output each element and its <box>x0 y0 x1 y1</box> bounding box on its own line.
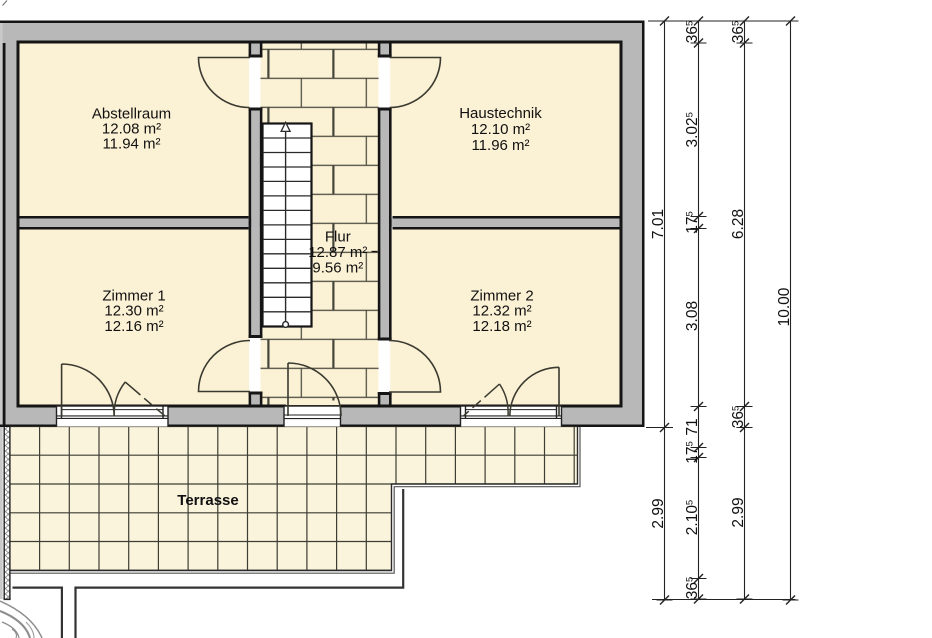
svg-text:Haustechnik: Haustechnik <box>459 105 542 122</box>
svg-text:Flur: Flur <box>325 229 351 246</box>
svg-text:6.28: 6.28 <box>730 209 747 239</box>
svg-text:71: 71 <box>684 418 701 435</box>
svg-text:2.105: 2.105 <box>684 500 701 535</box>
svg-text:12.10 m²: 12.10 m² <box>471 121 530 138</box>
svg-text:10.00: 10.00 <box>776 287 793 326</box>
svg-text:12.16 m²: 12.16 m² <box>104 318 163 335</box>
svg-text:3.08: 3.08 <box>684 301 701 331</box>
svg-text:12.18 m²: 12.18 m² <box>472 318 531 335</box>
svg-text:12.30 m²: 12.30 m² <box>104 303 163 320</box>
svg-text:3.025: 3.025 <box>684 112 701 147</box>
svg-text:12.87 m²: 12.87 m² <box>308 244 367 261</box>
svg-text:2.99: 2.99 <box>730 497 747 527</box>
svg-text:11.96 m²: 11.96 m² <box>471 137 529 154</box>
svg-text:Terrasse: Terrasse <box>177 492 238 509</box>
svg-text:7.01: 7.01 <box>650 209 667 239</box>
svg-text:11.94 m²: 11.94 m² <box>102 136 160 153</box>
svg-text:2.99: 2.99 <box>650 498 667 528</box>
svg-text:12.32 m²: 12.32 m² <box>472 303 531 320</box>
svg-text:9.56 m²: 9.56 m² <box>312 260 363 277</box>
